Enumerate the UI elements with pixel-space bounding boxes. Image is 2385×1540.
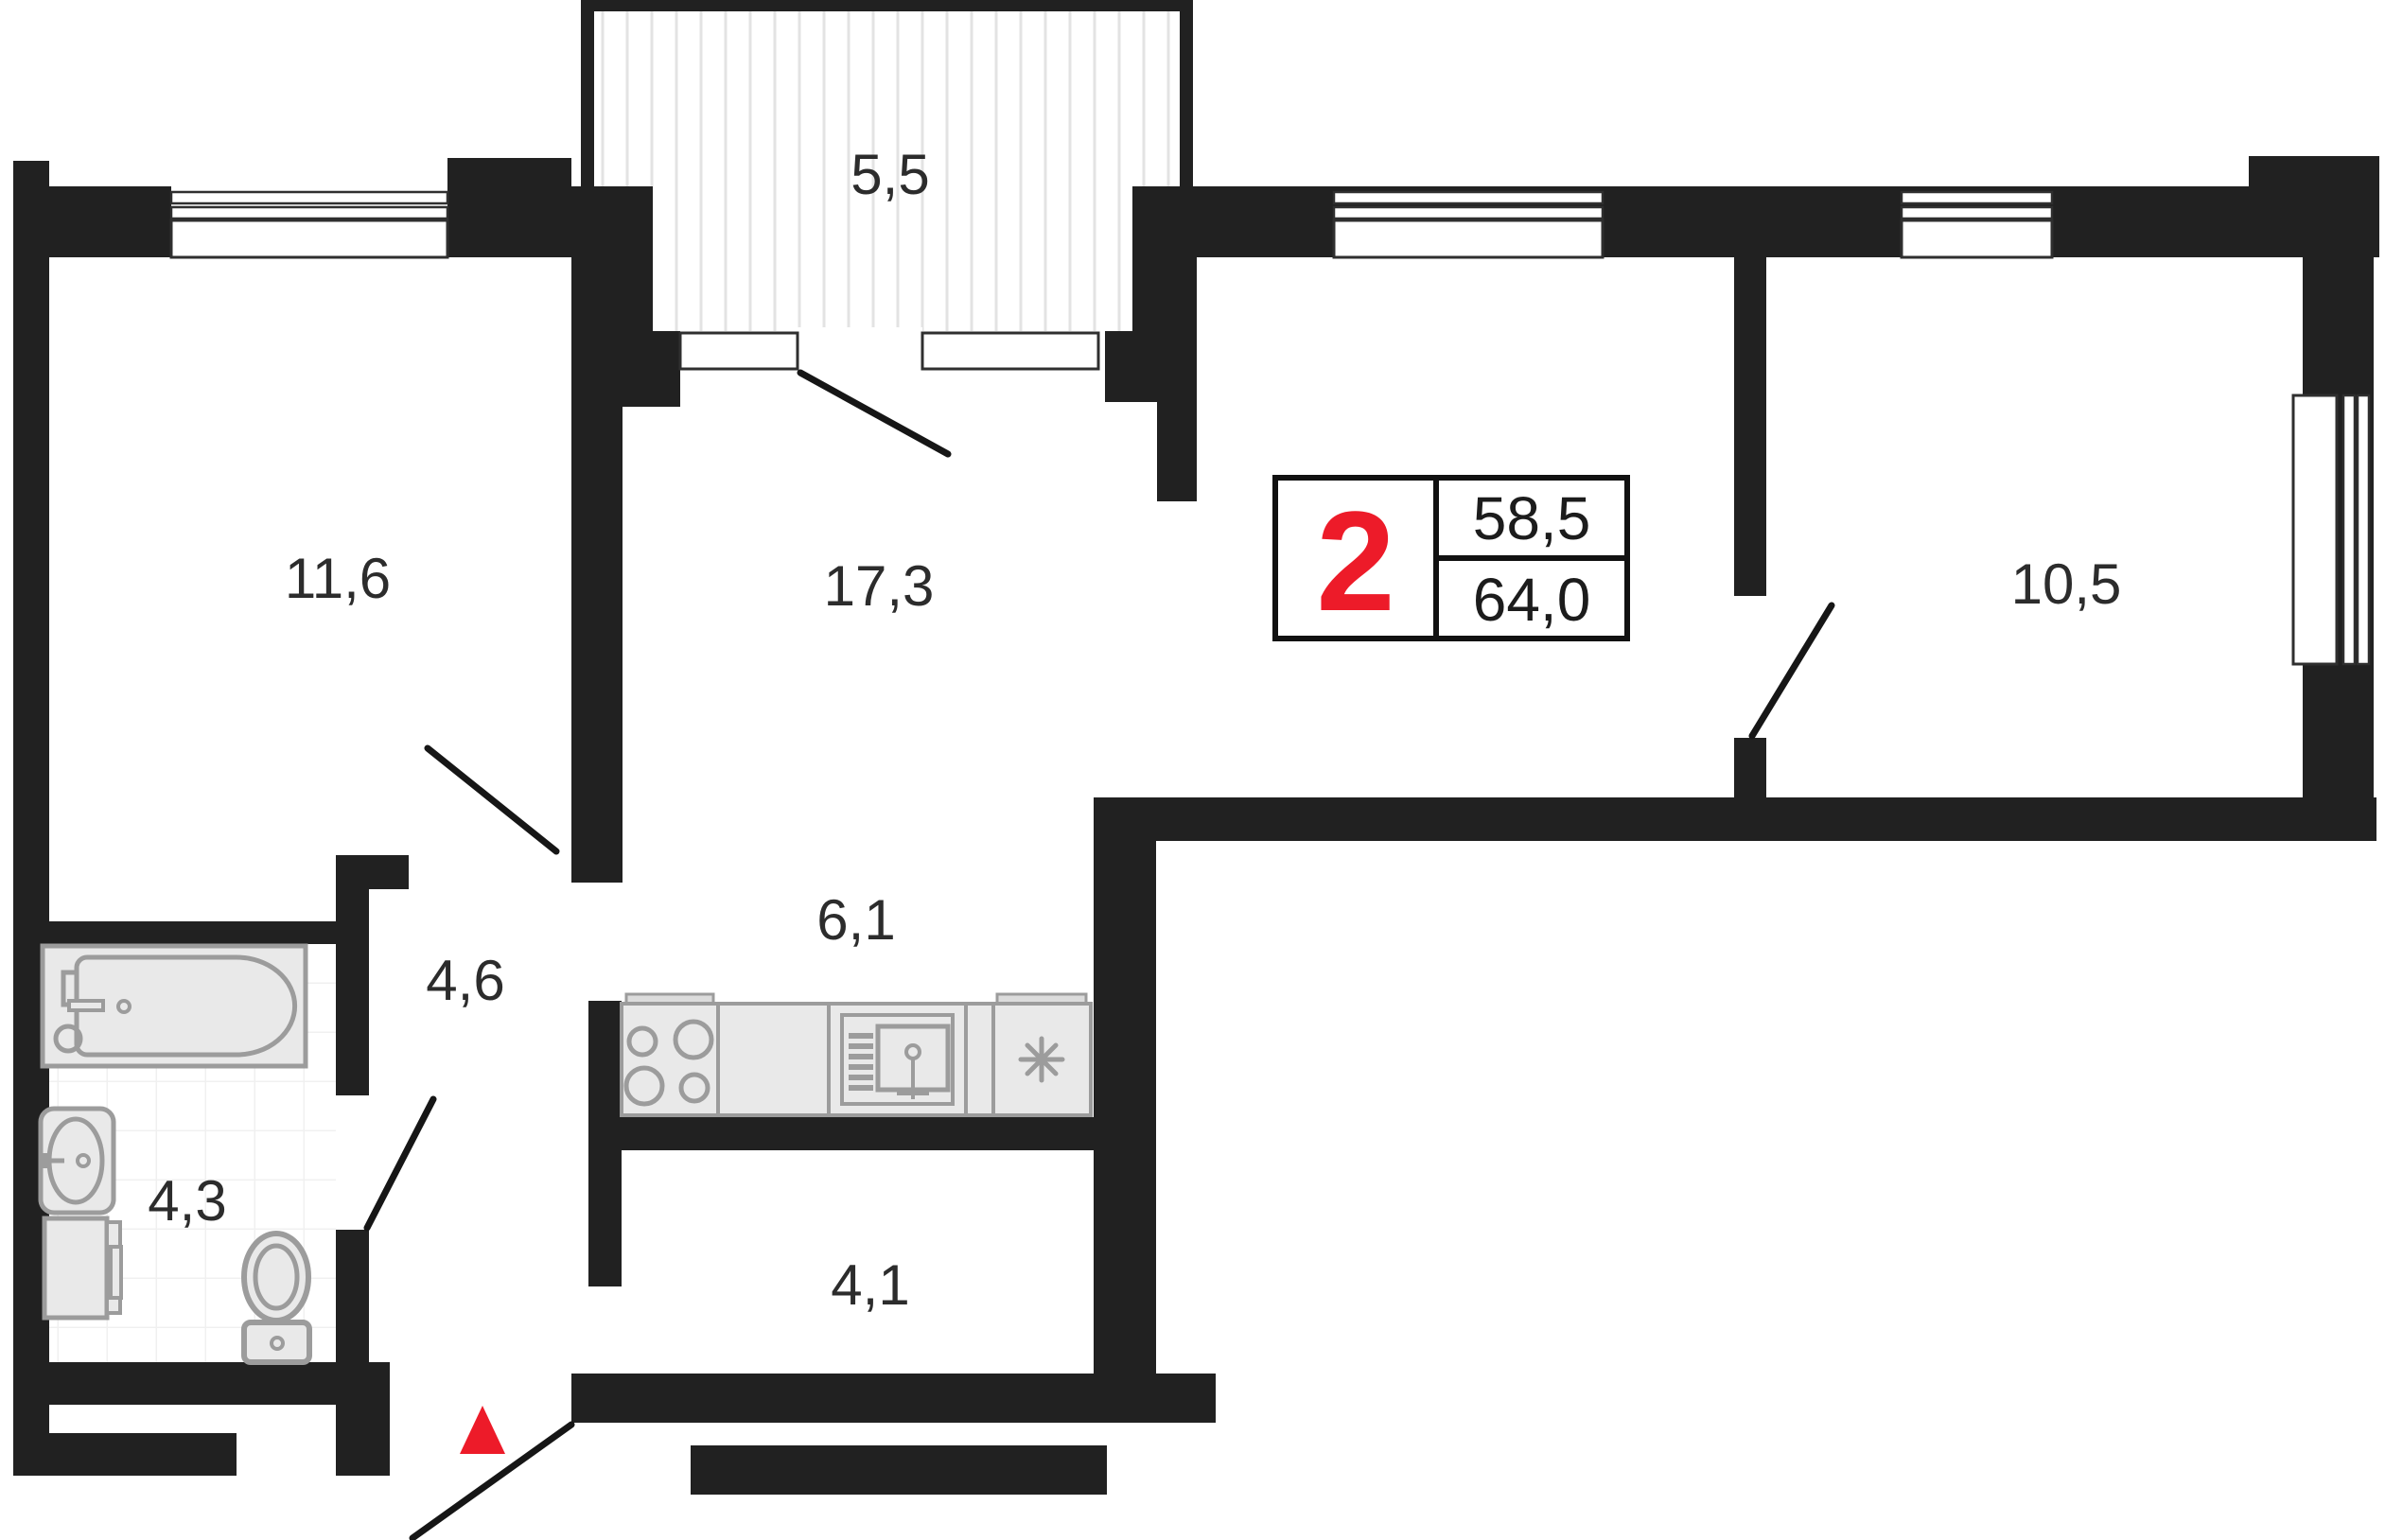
wall-bathroom-right-lower <box>336 1230 369 1362</box>
window-glass-line <box>171 207 447 219</box>
wall-parapet-entry <box>691 1445 1107 1495</box>
balcony-door-and-windows <box>680 327 1098 373</box>
label-entry-hall: 4,1 <box>831 1253 909 1317</box>
bathtub-icon <box>43 946 306 1066</box>
window-glass-line <box>1334 207 1603 219</box>
wall-top-right-corner-nub <box>2249 156 2379 189</box>
label-balcony: 5,5 <box>851 143 929 206</box>
window-sill <box>2293 395 2337 664</box>
window-bedroom2-top <box>1902 192 2052 257</box>
washer-body <box>44 1218 107 1318</box>
label-bedroom: 11,6 <box>285 547 391 610</box>
area-living-value: 58,5 <box>1473 484 1591 552</box>
wall-bathroom-bottom <box>13 1362 390 1405</box>
window-sill <box>171 220 447 257</box>
wall-balcony-left <box>581 0 594 189</box>
wall-partition-bedroom2 <box>1734 257 1766 596</box>
window-glass-line <box>2358 395 2369 664</box>
wall-window1-right-block <box>447 158 571 257</box>
wall-bathroom-top <box>45 921 369 944</box>
kitchen-counter <box>718 1004 829 1115</box>
wall-entry-right <box>1094 797 1156 1423</box>
window-bedroom <box>171 192 447 257</box>
label-living-room: 17,3 <box>824 554 935 618</box>
wall-balcony-top <box>581 0 1193 11</box>
window-glass-line <box>171 192 447 203</box>
wall-parapet-bottom-left <box>13 1433 237 1476</box>
sink-icon <box>40 1109 114 1213</box>
wall-top-left-segment <box>47 186 171 257</box>
wall-hall-stub <box>1157 334 1197 501</box>
window-glass-line <box>1334 192 1603 203</box>
balcony-window-sill-right <box>922 333 1098 369</box>
window-sill <box>1334 220 1603 257</box>
door-swing-bedroom <box>428 748 556 851</box>
balcony-window-sill-left <box>680 333 798 369</box>
wall-balcony-right <box>1180 0 1193 189</box>
window-glass-line <box>1902 192 2052 203</box>
info-box: 2 58,5 64,0 <box>1275 478 1627 640</box>
label-bathroom: 4,3 <box>148 1169 226 1233</box>
wall-partition-bedroom2-stub <box>1734 738 1766 797</box>
wall-balcony-sill-left-block <box>592 331 680 407</box>
label-bedroom-2: 10,5 <box>2011 552 2122 616</box>
fridge-snowflake <box>1021 1039 1062 1080</box>
bathtub-faucet-spout <box>69 1001 103 1010</box>
door-swing-balcony <box>800 373 948 454</box>
washing-machine-icon <box>44 1218 121 1318</box>
wall-balcony-sill-right-block <box>1105 331 1157 402</box>
wall-bottom-left-pier <box>336 1362 390 1476</box>
unit-rooms-count: 2 <box>1316 481 1394 640</box>
wall-bottom-long <box>1094 797 2376 841</box>
door-swing-bathroom <box>367 1099 433 1228</box>
washer-handle <box>111 1247 121 1298</box>
window-glass-line <box>1902 207 2052 219</box>
window-bedroom2-right <box>2293 395 2369 664</box>
toilet-icon <box>244 1234 309 1362</box>
window-glass-line <box>2343 395 2355 664</box>
kitchen-fixtures <box>622 994 1091 1115</box>
floor-plan-canvas: 2 58,5 64,0 11,6 17,3 5,5 10,5 6,1 4,6 4… <box>0 0 2385 1540</box>
basin-tap-base <box>40 1153 49 1168</box>
kitchen-gap-cabinet <box>966 1004 993 1115</box>
wall-divider-room1-living <box>571 186 623 883</box>
wall-under-kitchen <box>588 1117 1094 1150</box>
balcony-door-opening <box>798 327 922 373</box>
window-sill <box>1902 220 2052 257</box>
floor-plan: 2 58,5 64,0 11,6 17,3 5,5 10,5 6,1 4,6 4… <box>0 0 2385 1540</box>
door-swing-bedroom2 <box>1752 605 1832 736</box>
wall-top-right-band <box>1132 186 2379 257</box>
wall-bathroom-right-upper <box>336 855 369 1095</box>
label-corridor: 4,6 <box>426 949 504 1012</box>
entrance-marker-icon <box>460 1406 505 1454</box>
wall-balcony-right-column <box>1132 257 1197 334</box>
window-hall <box>1334 192 1603 257</box>
area-total-value: 64,0 <box>1473 566 1591 634</box>
wall-entry-bottom <box>571 1374 1216 1423</box>
toilet-tank <box>244 1322 309 1362</box>
label-hallway: 6,1 <box>816 888 895 952</box>
